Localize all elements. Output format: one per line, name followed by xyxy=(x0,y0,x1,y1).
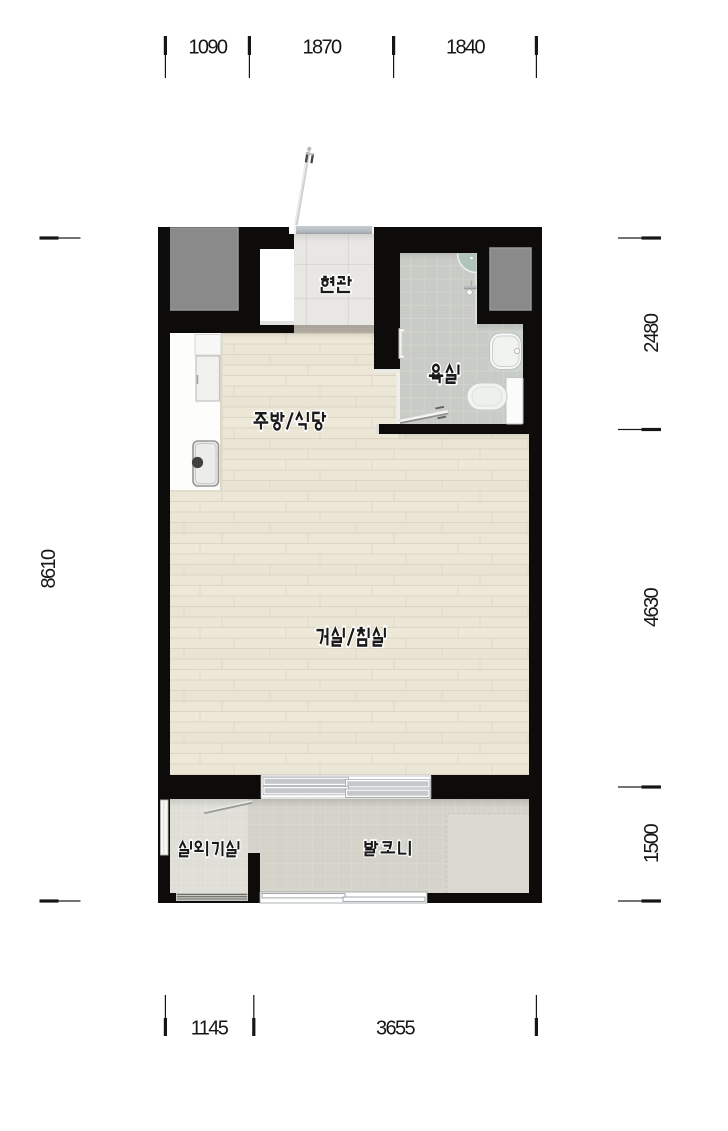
svg-text:1090: 1090 xyxy=(188,37,228,59)
svg-text:3655: 3655 xyxy=(376,1018,416,1040)
svg-text:2480: 2480 xyxy=(641,313,663,353)
svg-text:1145: 1145 xyxy=(191,1018,229,1040)
svg-text:8610: 8610 xyxy=(38,549,60,589)
svg-text:1870: 1870 xyxy=(302,37,342,59)
svg-text:1840: 1840 xyxy=(446,37,486,59)
svg-text:1500: 1500 xyxy=(641,823,663,863)
svg-text:4630: 4630 xyxy=(641,587,663,627)
